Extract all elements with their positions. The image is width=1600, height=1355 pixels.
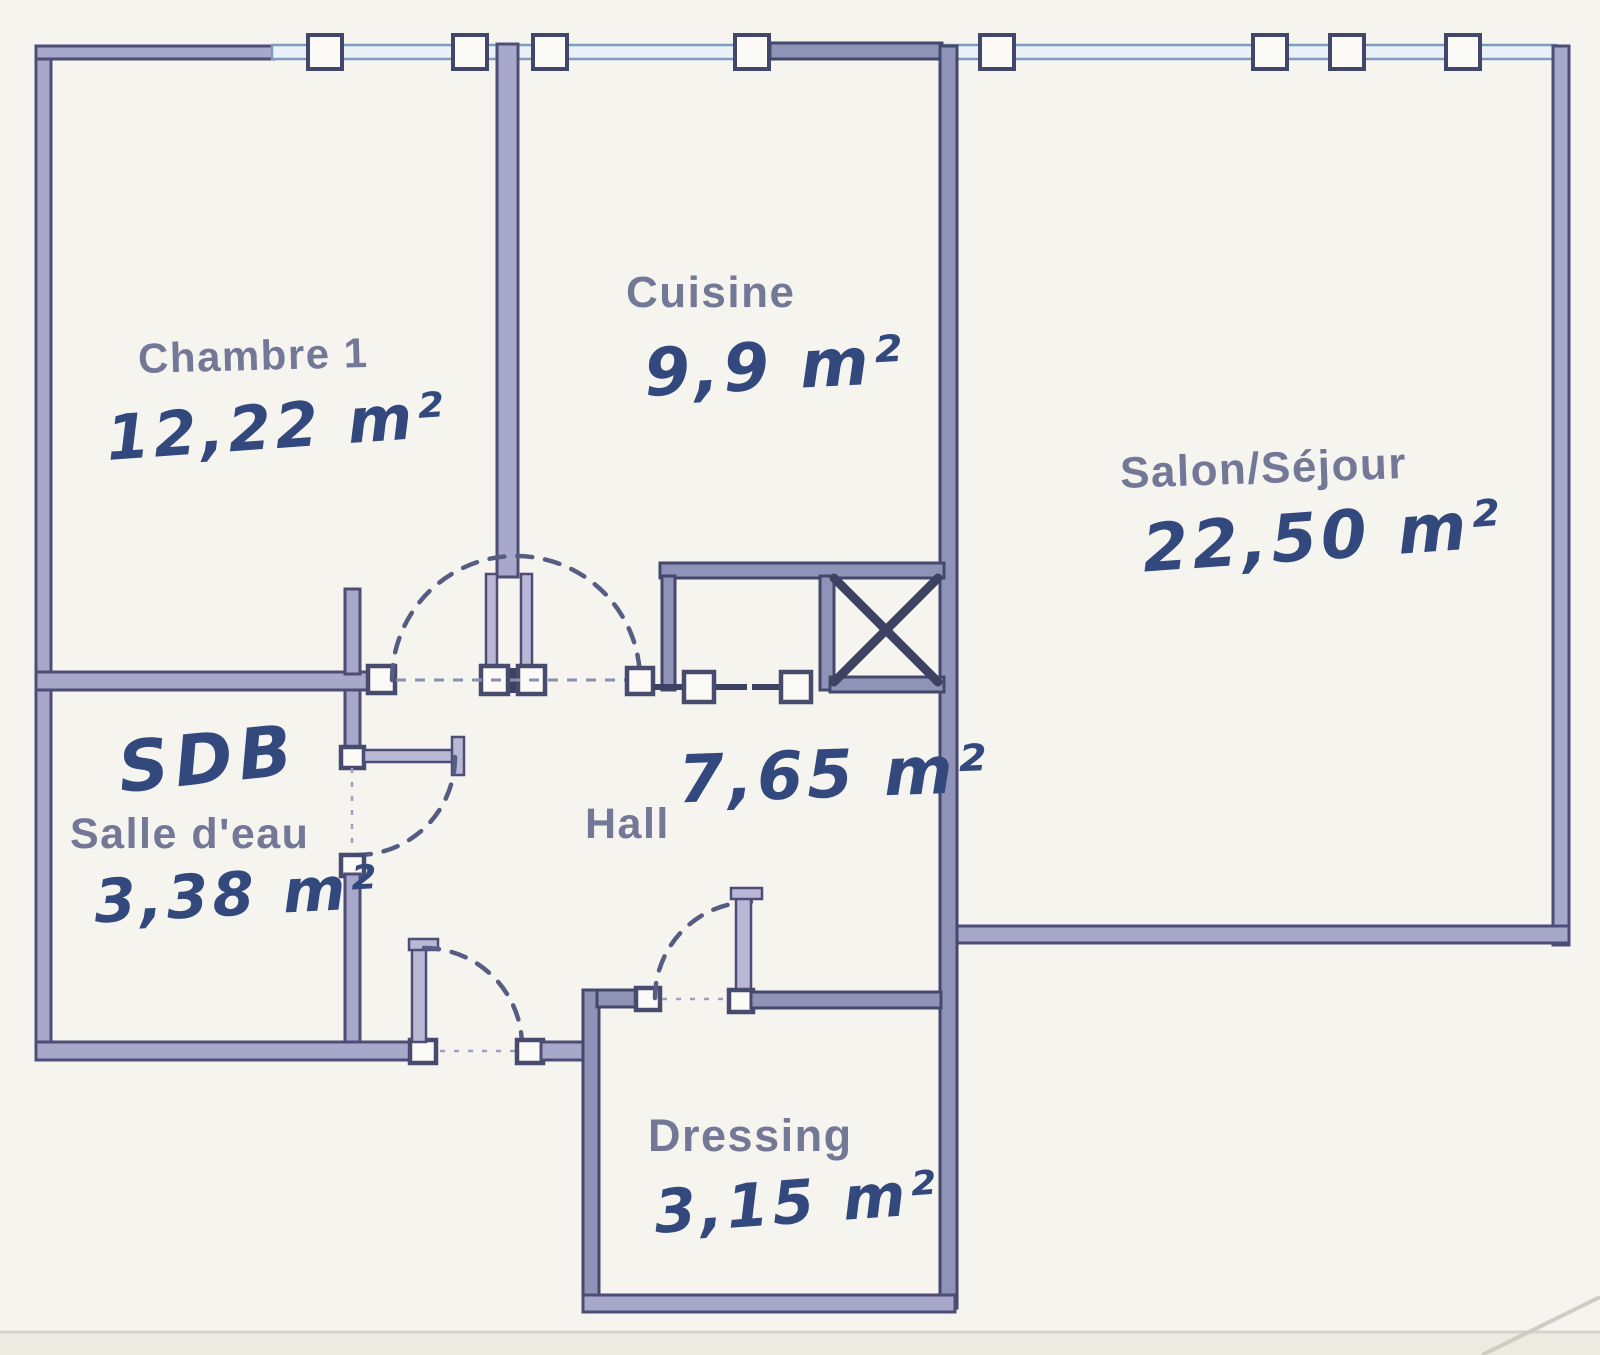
exterior-top-wall-segment [36,46,274,59]
hall-area: 7,65 m² [677,731,991,819]
hall-label: Hall [585,800,670,849]
salon-label: Salon/Séjour [1119,439,1408,499]
cuisine-label: Cuisine [626,268,795,318]
dressing-label: Dressing [648,1110,853,1162]
salon-bottom-wall [948,926,1569,943]
exterior-right-wall [1553,46,1569,945]
cuisine-area: 9,9 m² [642,321,907,412]
salle-deau-label: Salle d'eau [70,810,309,859]
shaft-cross-symbol [834,578,938,682]
floor-plan-page: Chambre 1 12,22 m² Cuisine 9,9 m² Salon/… [0,0,1600,1355]
sdb-area: 3,38 m² [92,853,381,938]
exterior-left-wall [36,46,51,1058]
chambre1-label: Chambre 1 [137,329,369,383]
